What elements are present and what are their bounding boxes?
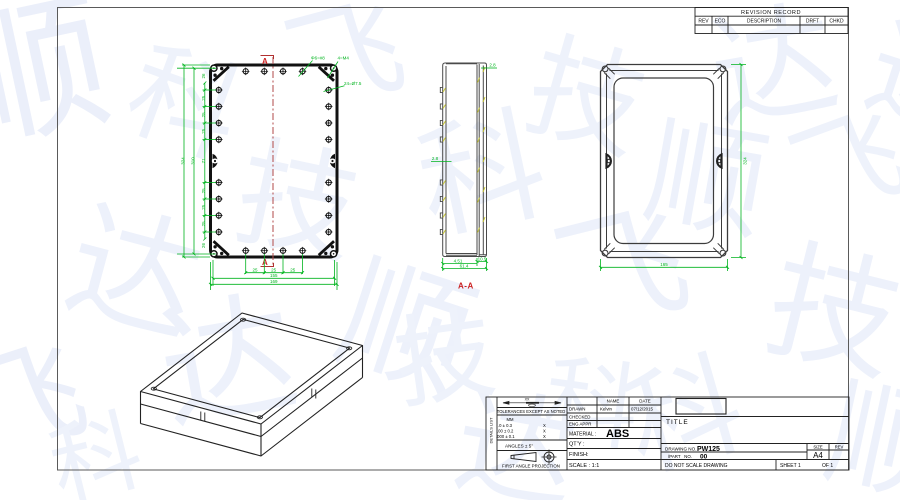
svg-text:CHKD: CHKD	[829, 19, 844, 25]
svg-text:25: 25	[201, 188, 206, 194]
svg-text:NAME: NAME	[607, 399, 620, 404]
svg-text:25: 25	[201, 128, 206, 134]
svg-text:达: 达	[149, 276, 308, 448]
svg-text:ABS: ABS	[606, 428, 629, 440]
svg-text:.0 ± 0.3: .0 ± 0.3	[498, 423, 513, 428]
svg-text:X: X	[543, 423, 546, 428]
svg-text:25: 25	[201, 204, 206, 210]
svg-text:FIRST ANGLE PROJECTION: FIRST ANGLE PROJECTION	[502, 464, 560, 469]
svg-text:169: 169	[270, 279, 278, 284]
svg-text:A: A	[262, 258, 268, 267]
svg-text:PW125: PW125	[697, 446, 720, 453]
svg-text:24=Ø7.5: 24=Ø7.5	[344, 81, 362, 86]
svg-text:OF 1: OF 1	[822, 463, 833, 469]
svg-text:Φ6=#8: Φ6=#8	[311, 56, 325, 61]
svg-text:REVISION RECORD: REVISION RECORD	[741, 10, 801, 16]
svg-text:DRAWING NO.: DRAWING NO.	[665, 447, 696, 452]
svg-text:科: 科	[112, 27, 257, 180]
svg-text:A-A: A-A	[458, 282, 474, 291]
svg-text:X: X	[543, 434, 546, 439]
svg-text:A: A	[262, 57, 268, 66]
svg-text:61.4: 61.4	[460, 264, 469, 269]
svg-text:ANGLES ± 5°: ANGLES ± 5°	[505, 444, 533, 449]
svg-text:DRFT: DRFT	[806, 19, 819, 25]
svg-text:71: 71	[201, 158, 206, 164]
svg-text:REV: REV	[698, 19, 709, 25]
svg-text:DETAILS LIST: DETAILS LIST	[489, 417, 494, 443]
svg-text:A4: A4	[813, 451, 823, 460]
svg-text:FINISH:: FINISH:	[569, 452, 589, 458]
svg-text:25: 25	[252, 268, 258, 273]
svg-text:26: 26	[201, 243, 206, 249]
svg-text:25: 25	[201, 95, 206, 101]
svg-text:DESCRIPTION: DESCRIPTION	[747, 19, 782, 25]
svg-text:07/12/2015: 07/12/2015	[631, 407, 654, 412]
svg-text:QT’Y :: QT’Y :	[569, 442, 585, 448]
svg-text:2.8: 2.8	[489, 63, 496, 68]
svg-text:/PART NO.: /PART NO.	[668, 454, 692, 459]
svg-text:SHEET 1: SHEET 1	[780, 463, 801, 469]
svg-text:310: 310	[191, 157, 196, 165]
svg-text:MATERIAL :: MATERIAL :	[569, 432, 596, 438]
svg-text:10.5: 10.5	[478, 257, 487, 262]
svg-text:4=M4: 4=M4	[338, 56, 350, 61]
svg-text:REV: REV	[835, 445, 844, 450]
svg-text:.00 ± 0.2: .00 ± 0.2	[497, 429, 514, 434]
svg-text:25: 25	[271, 268, 277, 273]
svg-text:SCALE : 1:1: SCALE : 1:1	[569, 463, 599, 469]
svg-text:00: 00	[700, 454, 708, 461]
svg-text:25: 25	[201, 112, 206, 118]
svg-text:25: 25	[290, 268, 296, 273]
svg-text:ECO: ECO	[715, 19, 726, 25]
svg-text:Kelvin: Kelvin	[600, 407, 613, 412]
svg-text:DATE: DATE	[639, 399, 650, 404]
svg-text:TOLERANCES EXCEPT AS NOTED: TOLERANCES EXCEPT AS NOTED	[497, 409, 566, 414]
svg-text:X: X	[543, 429, 546, 434]
svg-text:25: 25	[201, 221, 206, 227]
svg-text:飞: 飞	[273, 0, 417, 134]
svg-text:.000 ± 0.1: .000 ± 0.1	[496, 434, 515, 439]
svg-text:DO NOT SCALE DRAWING: DO NOT SCALE DRAWING	[665, 463, 728, 469]
svg-text:26: 26	[201, 73, 206, 79]
svg-text:MM: MM	[507, 417, 514, 422]
svg-text:SIZE: SIZE	[813, 445, 823, 450]
svg-text:XX: XX	[525, 398, 530, 402]
svg-text:技: 技	[387, 297, 502, 422]
svg-text:ENG APPR: ENG APPR	[569, 422, 591, 427]
svg-text:2.8: 2.8	[432, 156, 439, 161]
svg-text:155: 155	[270, 273, 278, 278]
svg-text:CHECKED: CHECKED	[569, 414, 590, 419]
svg-text:324: 324	[743, 157, 748, 165]
svg-text:顺: 顺	[0, 0, 123, 171]
svg-text:TITLE: TITLE	[666, 419, 689, 426]
svg-text:DRAWN: DRAWN	[569, 407, 585, 412]
svg-text:165: 165	[660, 262, 668, 267]
svg-text:324: 324	[181, 157, 186, 165]
